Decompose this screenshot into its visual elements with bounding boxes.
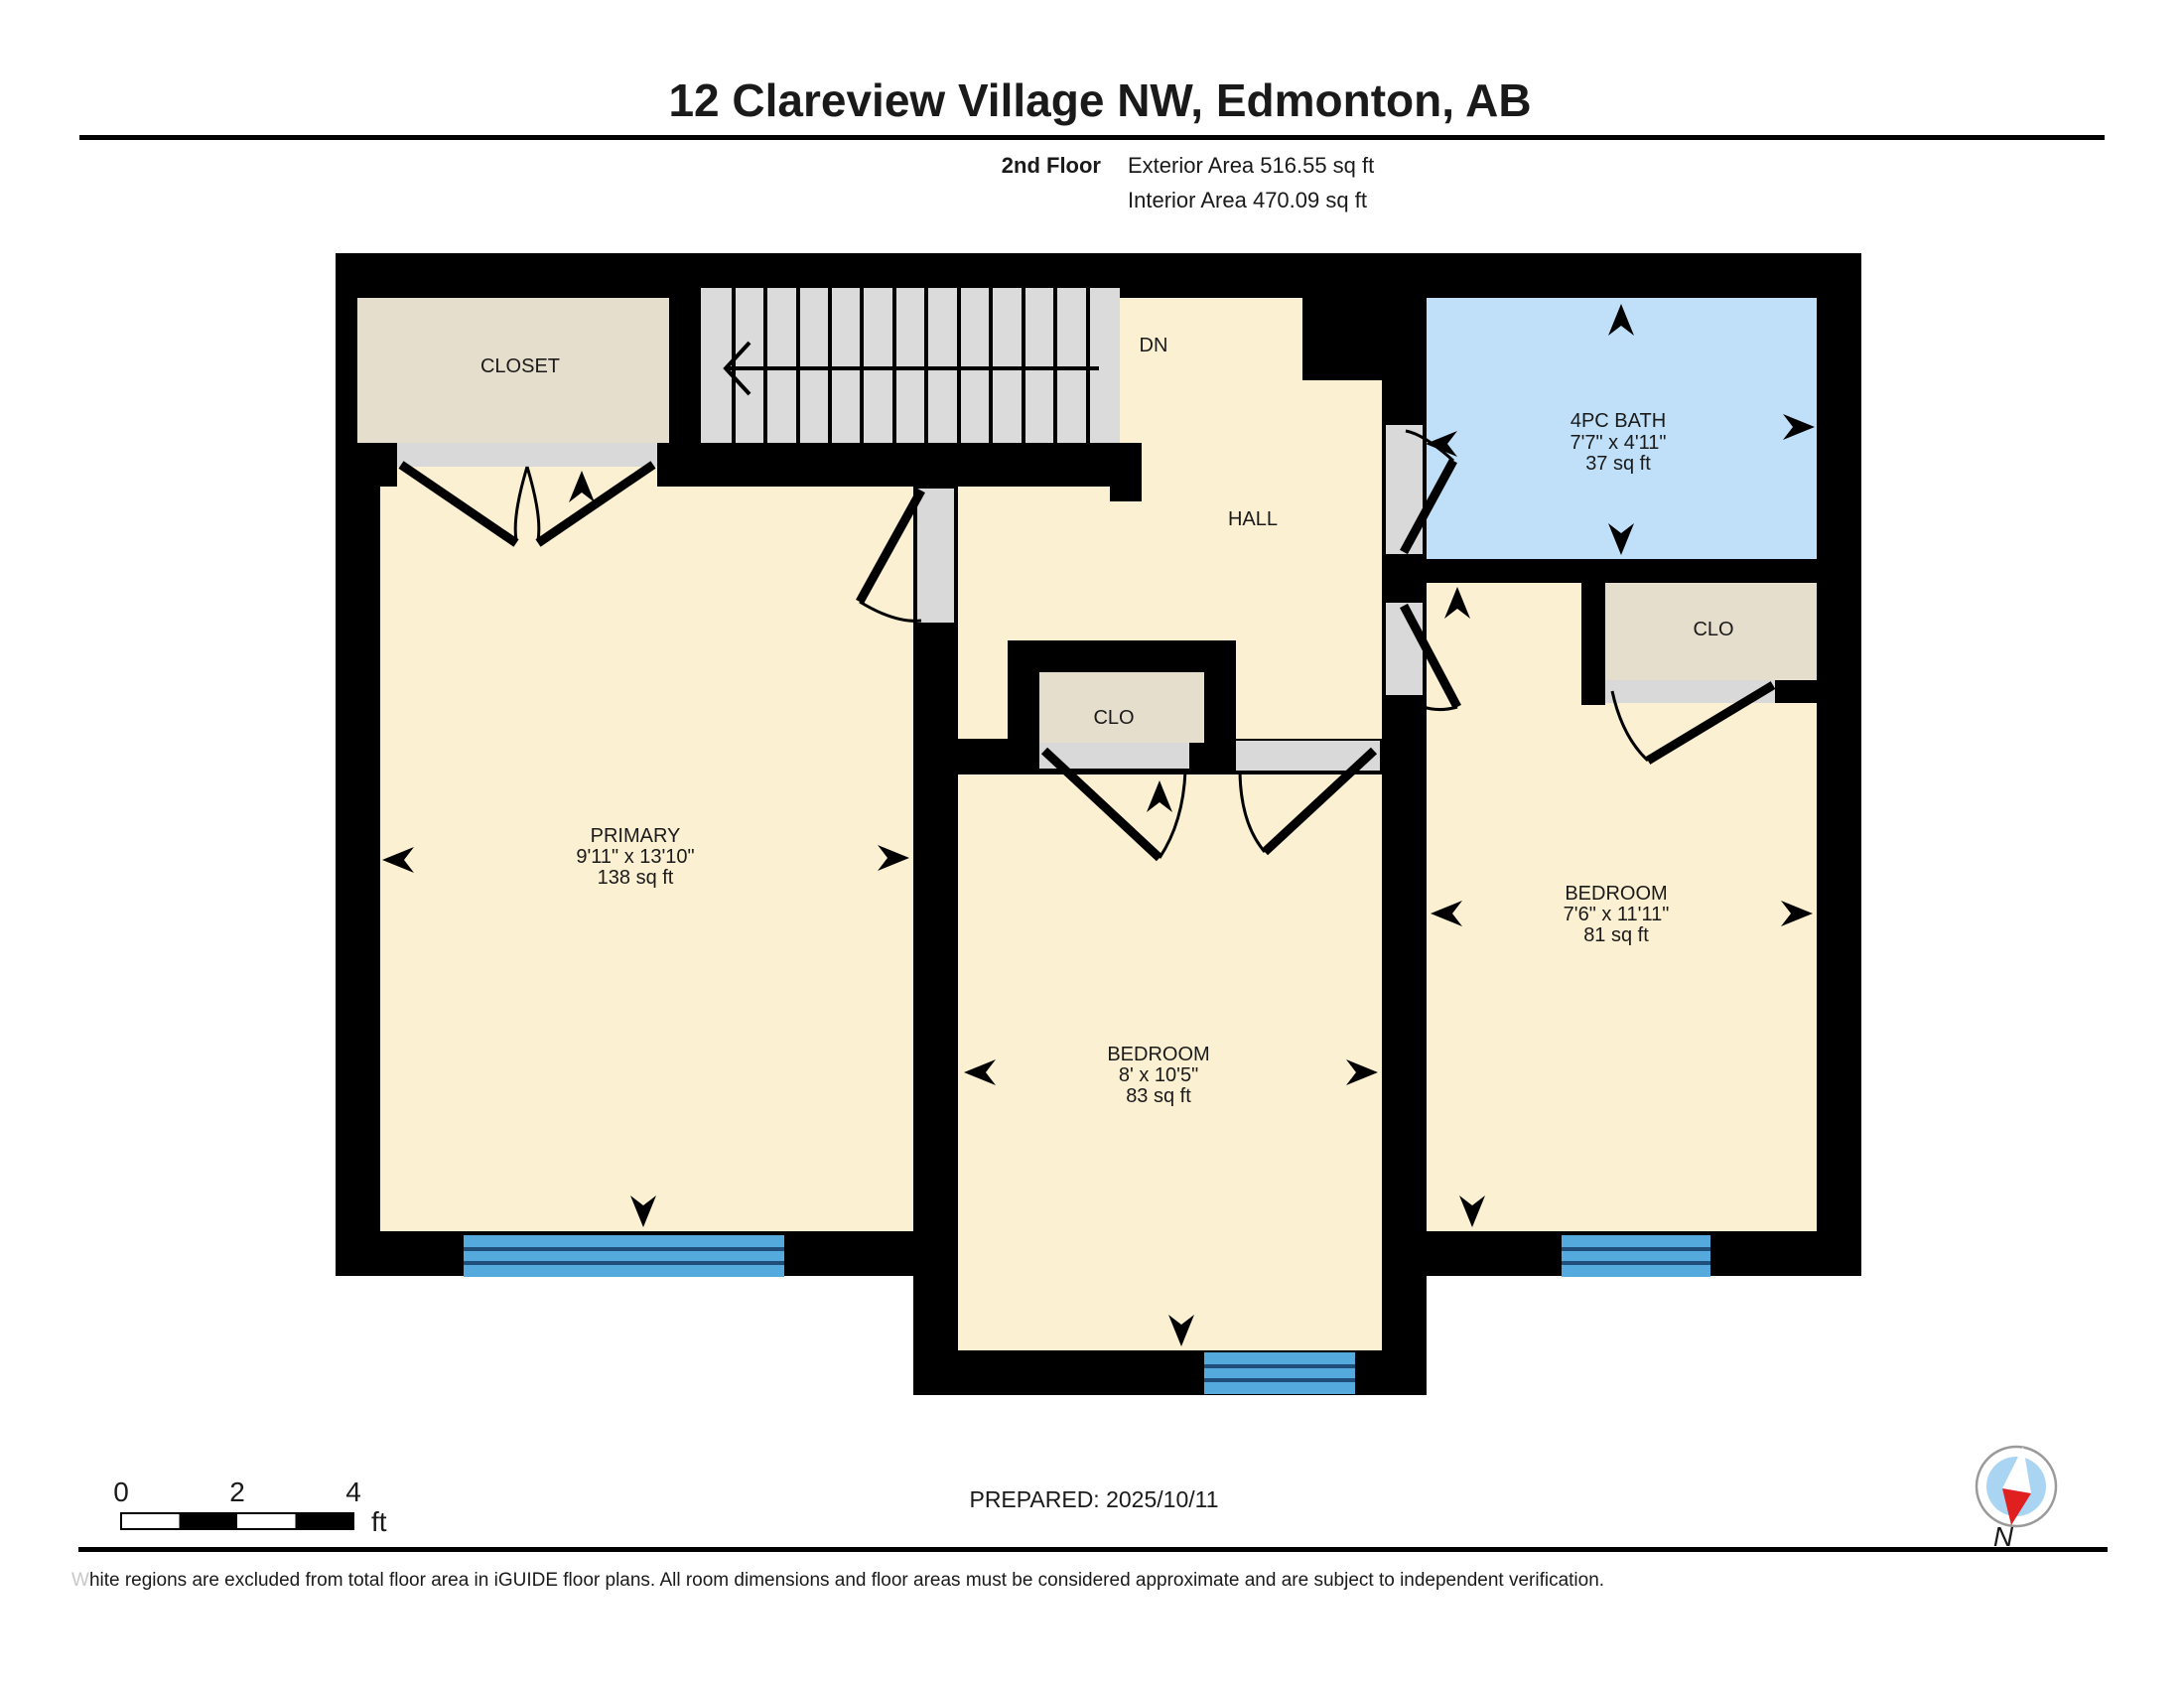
bedroom-middle-name: BEDROOM — [1107, 1044, 1209, 1065]
scale-bar-segment — [180, 1513, 238, 1529]
primary-area: 138 sq ft — [598, 867, 674, 889]
bedroom-right-dims: 7'6" x 11'11" — [1564, 904, 1670, 925]
scale-tick-2: 2 — [229, 1477, 245, 1507]
scale-unit: ft — [371, 1506, 387, 1537]
bath-area: 37 sq ft — [1585, 453, 1651, 475]
bedroom-middle-dims: 8' x 10'5" — [1119, 1064, 1198, 1086]
footer-divider — [78, 1547, 2108, 1552]
scale-tick-4: 4 — [345, 1477, 361, 1507]
hall-label: HALL — [1228, 508, 1278, 530]
bedroom-right-window — [1562, 1235, 1710, 1277]
primary-dims: 9'11" x 13'10" — [576, 846, 694, 868]
scale-bar-segment — [296, 1513, 354, 1529]
disclaimer: White regions are excluded from total fl… — [71, 1570, 1604, 1591]
closet-door-opening — [397, 443, 657, 467]
bedroom-middle-area: 83 sq ft — [1126, 1085, 1191, 1107]
right-closet-label: CLO — [1693, 619, 1733, 640]
exterior-area-label: Exterior Area 516.55 sq ft — [1128, 153, 1374, 178]
bedroom-right-door-opening — [1386, 603, 1423, 695]
compass: N — [1977, 1447, 2056, 1552]
bath-dims: 7'7" x 4'11" — [1570, 432, 1666, 454]
wall-right-closet-side — [1581, 583, 1605, 705]
bedroom-right-name: BEDROOM — [1565, 883, 1667, 905]
primary-window — [464, 1235, 784, 1277]
wall-stairs-corner-post — [1110, 484, 1142, 501]
bedroom-middle-window — [1204, 1352, 1355, 1394]
footer: 0 2 4 ft PREPARED: 2025/10/11 N White re… — [71, 1447, 2108, 1591]
scale-bar: 0 2 4 ft — [113, 1477, 387, 1537]
floorplan-canvas: 12 Clareview Village NW, Edmonton, AB 2n… — [0, 0, 2184, 1688]
header-divider — [79, 135, 2105, 140]
primary-door-opening — [917, 489, 954, 623]
disclaimer-text: hite regions are excluded from total flo… — [89, 1570, 1604, 1591]
wall-stairs-bottom — [657, 443, 1142, 487]
hall-floor-a — [1120, 298, 1142, 449]
wall-closet-left-post — [336, 443, 397, 487]
wall-right-closet-post — [1775, 680, 1817, 703]
interior-area-label: Interior Area 470.09 sq ft — [1128, 188, 1367, 212]
stairs-dn-label: DN — [1140, 335, 1168, 356]
primary-name: PRIMARY — [591, 825, 681, 847]
floor-label: 2nd Floor — [1002, 153, 1102, 178]
bath-name: 4PC BATH — [1570, 410, 1666, 432]
floorplan-page: 12 Clareview Village NW, Edmonton, AB 2n… — [0, 0, 2184, 1688]
scale-tick-0: 0 — [113, 1477, 129, 1507]
closet-label: CLOSET — [480, 355, 560, 377]
hall-closet-label: CLO — [1093, 707, 1134, 729]
prepared-date: PREPARED: 2025/10/11 — [969, 1486, 1218, 1512]
disclaimer-first-letter: W — [71, 1570, 89, 1591]
bedroom-right-area: 81 sq ft — [1583, 924, 1649, 946]
header: 12 Clareview Village NW, Edmonton, AB 2n… — [79, 74, 2105, 212]
page-title: 12 Clareview Village NW, Edmonton, AB — [668, 74, 1531, 126]
